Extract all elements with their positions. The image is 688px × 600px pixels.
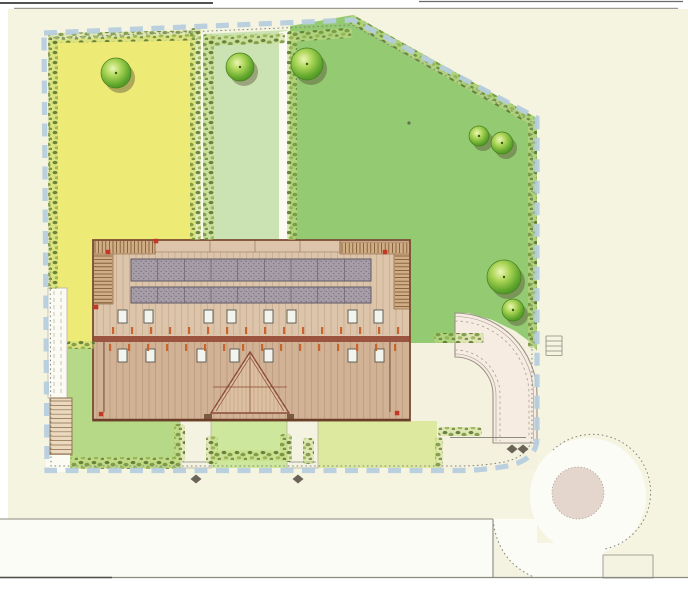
- ridge-tick: [147, 344, 149, 351]
- site-plan-drawing: [0, 0, 688, 600]
- tree-center-dot: [478, 135, 480, 137]
- skylight: [118, 310, 127, 323]
- ridge-tick: [169, 327, 171, 334]
- ridge-tick: [264, 327, 266, 334]
- parcel-gap-right: [279, 31, 287, 240]
- skylight: [264, 349, 273, 362]
- ridge-tick: [226, 327, 228, 334]
- skylight: [348, 310, 357, 323]
- ridge-tick: [375, 344, 377, 351]
- solar-panel-rows: [131, 259, 371, 303]
- site-plan-page: [0, 0, 688, 600]
- roundabout-se-curb: [603, 555, 653, 578]
- hedge: [174, 424, 185, 462]
- ridge-tick: [261, 344, 263, 351]
- solar-panel-row: [131, 259, 371, 281]
- roof-ridge: [93, 336, 410, 342]
- red-survey-mark: [99, 412, 104, 417]
- skylight: [118, 349, 127, 362]
- skylight: [144, 310, 153, 323]
- ridge-tick: [340, 327, 342, 334]
- ridge-tick: [356, 344, 358, 351]
- skylight: [348, 349, 357, 362]
- street-road: [0, 519, 537, 577]
- ridge-tick: [321, 327, 323, 334]
- skylight: [287, 310, 296, 323]
- red-survey-mark: [94, 305, 99, 310]
- roundabout-center-island: [552, 467, 604, 519]
- solar-panel-row: [131, 287, 371, 303]
- tree-center-dot: [115, 72, 117, 74]
- west-stairs: [50, 398, 72, 455]
- hedge: [203, 34, 214, 240]
- tree-center-dot: [512, 309, 514, 311]
- hedge: [434, 333, 484, 343]
- ridge-tick: [150, 327, 152, 334]
- ridge-tick: [302, 327, 304, 334]
- ridge-tick: [207, 327, 209, 334]
- tree-center-dot: [503, 276, 505, 278]
- red-survey-mark: [395, 411, 400, 416]
- hedge: [67, 341, 95, 349]
- hedge: [280, 434, 292, 462]
- hedge: [212, 450, 287, 461]
- red-survey-mark: [154, 239, 159, 244]
- hedge: [438, 427, 482, 436]
- tree-center-dot: [306, 63, 308, 65]
- red-survey-mark: [106, 250, 111, 255]
- ridge-tick: [397, 327, 399, 334]
- ridge-tick: [378, 327, 380, 334]
- ridge-tick: [188, 327, 190, 334]
- tree-center-dot: [239, 66, 241, 68]
- ridge-tick: [242, 344, 244, 351]
- hedge: [190, 28, 201, 240]
- ridge-tick: [112, 327, 114, 334]
- building-roof: [93, 239, 410, 421]
- ridge-tick: [283, 327, 285, 334]
- ridge-tick: [109, 344, 111, 351]
- lawn-small-dot: [407, 121, 410, 124]
- ridge-tick: [245, 327, 247, 334]
- roof-top-band: [155, 240, 340, 252]
- ridge-tick: [318, 344, 320, 351]
- roundabout-south-opening: [536, 543, 604, 577]
- skylight: [230, 349, 239, 362]
- skylight: [374, 310, 383, 323]
- ridge-tick: [128, 344, 130, 351]
- skylight: [204, 310, 213, 323]
- ridge-tick: [337, 344, 339, 351]
- hedge: [435, 437, 443, 468]
- skylight: [264, 310, 273, 323]
- ridge-tick: [280, 344, 282, 351]
- hedge: [206, 436, 218, 464]
- hedge: [70, 457, 182, 469]
- ridge-tick: [166, 344, 168, 351]
- lawn-lower-right: [318, 421, 437, 468]
- skylight: [227, 310, 236, 323]
- hedge: [303, 438, 314, 464]
- ridge-tick: [394, 344, 396, 351]
- tree-center-dot: [501, 142, 503, 144]
- ridge-tick: [204, 344, 206, 351]
- red-survey-mark: [383, 250, 388, 255]
- ridge-tick: [299, 344, 301, 351]
- ridge-tick: [359, 327, 361, 334]
- ridge-tick: [185, 344, 187, 351]
- ridge-tick: [223, 344, 225, 351]
- ridge-tick: [131, 327, 133, 334]
